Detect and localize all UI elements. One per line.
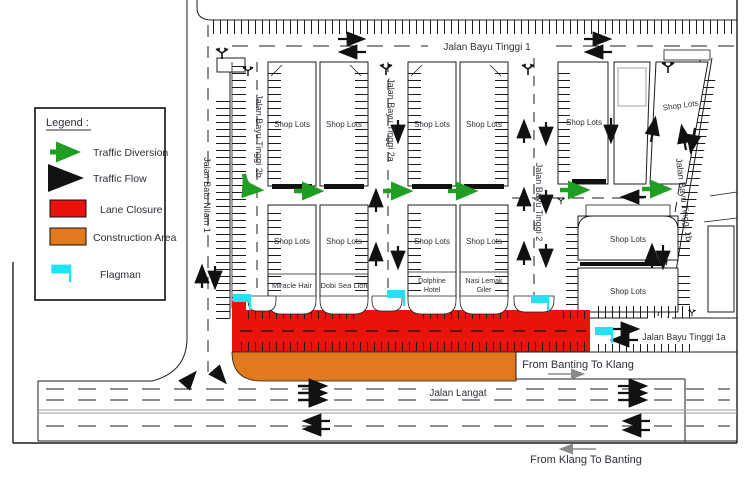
shop-lots-label: Shop Lots xyxy=(466,237,502,246)
shop-lots-label: Shop Lots xyxy=(566,118,602,127)
legend-construction-swatch xyxy=(50,228,86,245)
legend-item-label: Construction Area xyxy=(93,232,177,244)
legend-item-label: Traffic Flow xyxy=(93,173,147,185)
street-label-jalan-batu-nilam-1: Jalan Batu Nilam 1 xyxy=(202,157,212,233)
lane-closure-area xyxy=(232,296,590,352)
legend-lane-closure-swatch xyxy=(50,200,86,217)
direction-label-banting-to-klang: From Banting To Klang xyxy=(522,359,634,371)
road-jalan-langat xyxy=(38,379,737,442)
street-label-jalan-langat: Jalan Langat xyxy=(429,388,486,399)
direction-label-klang-to-banting: From Klang To Banting xyxy=(530,454,642,466)
street-label-jalan-bayu-tinggi-2b: Jalan Bayu Tinggi 2b xyxy=(254,94,264,178)
street-label-jalan-bayu-tinggi-1: Jalan Bayu Tinggi 1 xyxy=(443,42,531,53)
business-label-dolphine-hotel: Dolphine xyxy=(418,278,446,285)
business-label-miracle-hair: Miracle Hair xyxy=(272,281,313,290)
business-label-nasi-lemak-giler: Giler xyxy=(477,287,492,294)
parking-bays-1a-south xyxy=(596,344,692,352)
legend-title: Legend : xyxy=(46,117,89,129)
construction-area xyxy=(232,352,516,381)
legend-item-label: Flagman xyxy=(100,269,141,281)
flagman-marker xyxy=(595,327,612,343)
median-lines xyxy=(38,410,737,413)
road-jalan-bayu-tinggi-1 xyxy=(197,0,737,46)
parking-bays-batu-nilam xyxy=(216,96,230,320)
street-label-jalan-bayu-tinggi-2a: Jalan Bayu Tinggi 2a xyxy=(386,78,396,162)
legend-item-label: Traffic Diversion xyxy=(93,147,168,159)
legend: Legend : Traffic Diversion Traffic Flow … xyxy=(35,108,177,300)
parking-bays-2b xyxy=(232,64,246,308)
shop-lots-label: Shop Lots xyxy=(610,287,646,296)
traffic-plan-canvas: Legend : Traffic Diversion Traffic Flow … xyxy=(0,0,746,480)
shop-lots-label: Shop Lots xyxy=(326,120,362,129)
traffic-plan-drawing: Legend : Traffic Diversion Traffic Flow … xyxy=(0,0,746,480)
street-label-jalan-bayu-tinggi-2: Jalan Bayu Tinggi 2 xyxy=(534,163,544,242)
business-label-dolphine-hotel: Hotel xyxy=(424,287,441,294)
road-jalan-bayu-tinggi-2b xyxy=(232,62,257,308)
side-lot xyxy=(708,226,734,312)
shop-lots-label: Shop Lots xyxy=(326,237,362,246)
legend-item-label: Lane Closure xyxy=(100,204,163,216)
direction-arrows xyxy=(548,374,596,449)
street-label-jalan-bayu-tinggi-1a: Jalan Bayu Tinggi 1a xyxy=(642,332,726,342)
shop-lots-label: Shop Lots xyxy=(274,120,310,129)
parking-bays-1a-north xyxy=(596,306,690,318)
shop-lots-label: Shop Lots xyxy=(610,235,646,244)
business-label-nasi-lemak-giler: Nasi Lemak xyxy=(466,278,503,285)
parking-bays-top-right xyxy=(664,50,710,60)
shop-lots-label: Shop Lots xyxy=(466,120,502,129)
shop-lots-label: Shop Lots xyxy=(274,237,310,246)
parking-bays-top xyxy=(212,20,737,34)
shop-lots-label: Shop Lots xyxy=(414,237,450,246)
shop-lots-label: Shop Lots xyxy=(414,120,450,129)
business-label-dobi-sea-lion: Dobi Sea Lion xyxy=(320,281,367,290)
